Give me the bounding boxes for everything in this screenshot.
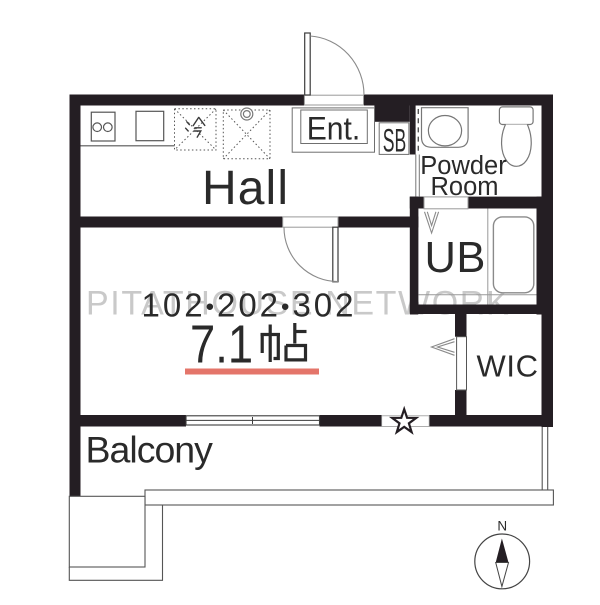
svg-text:SB: SB [383, 124, 406, 159]
svg-text:Ent.: Ent. [307, 111, 361, 147]
svg-text:7.1: 7.1 [190, 314, 253, 375]
svg-text:WIC: WIC [477, 349, 539, 384]
svg-text:N: N [497, 519, 507, 534]
svg-text:Balcony: Balcony [86, 429, 214, 471]
svg-text:Hall: Hall [202, 162, 289, 215]
svg-text:UB: UB [425, 234, 486, 282]
